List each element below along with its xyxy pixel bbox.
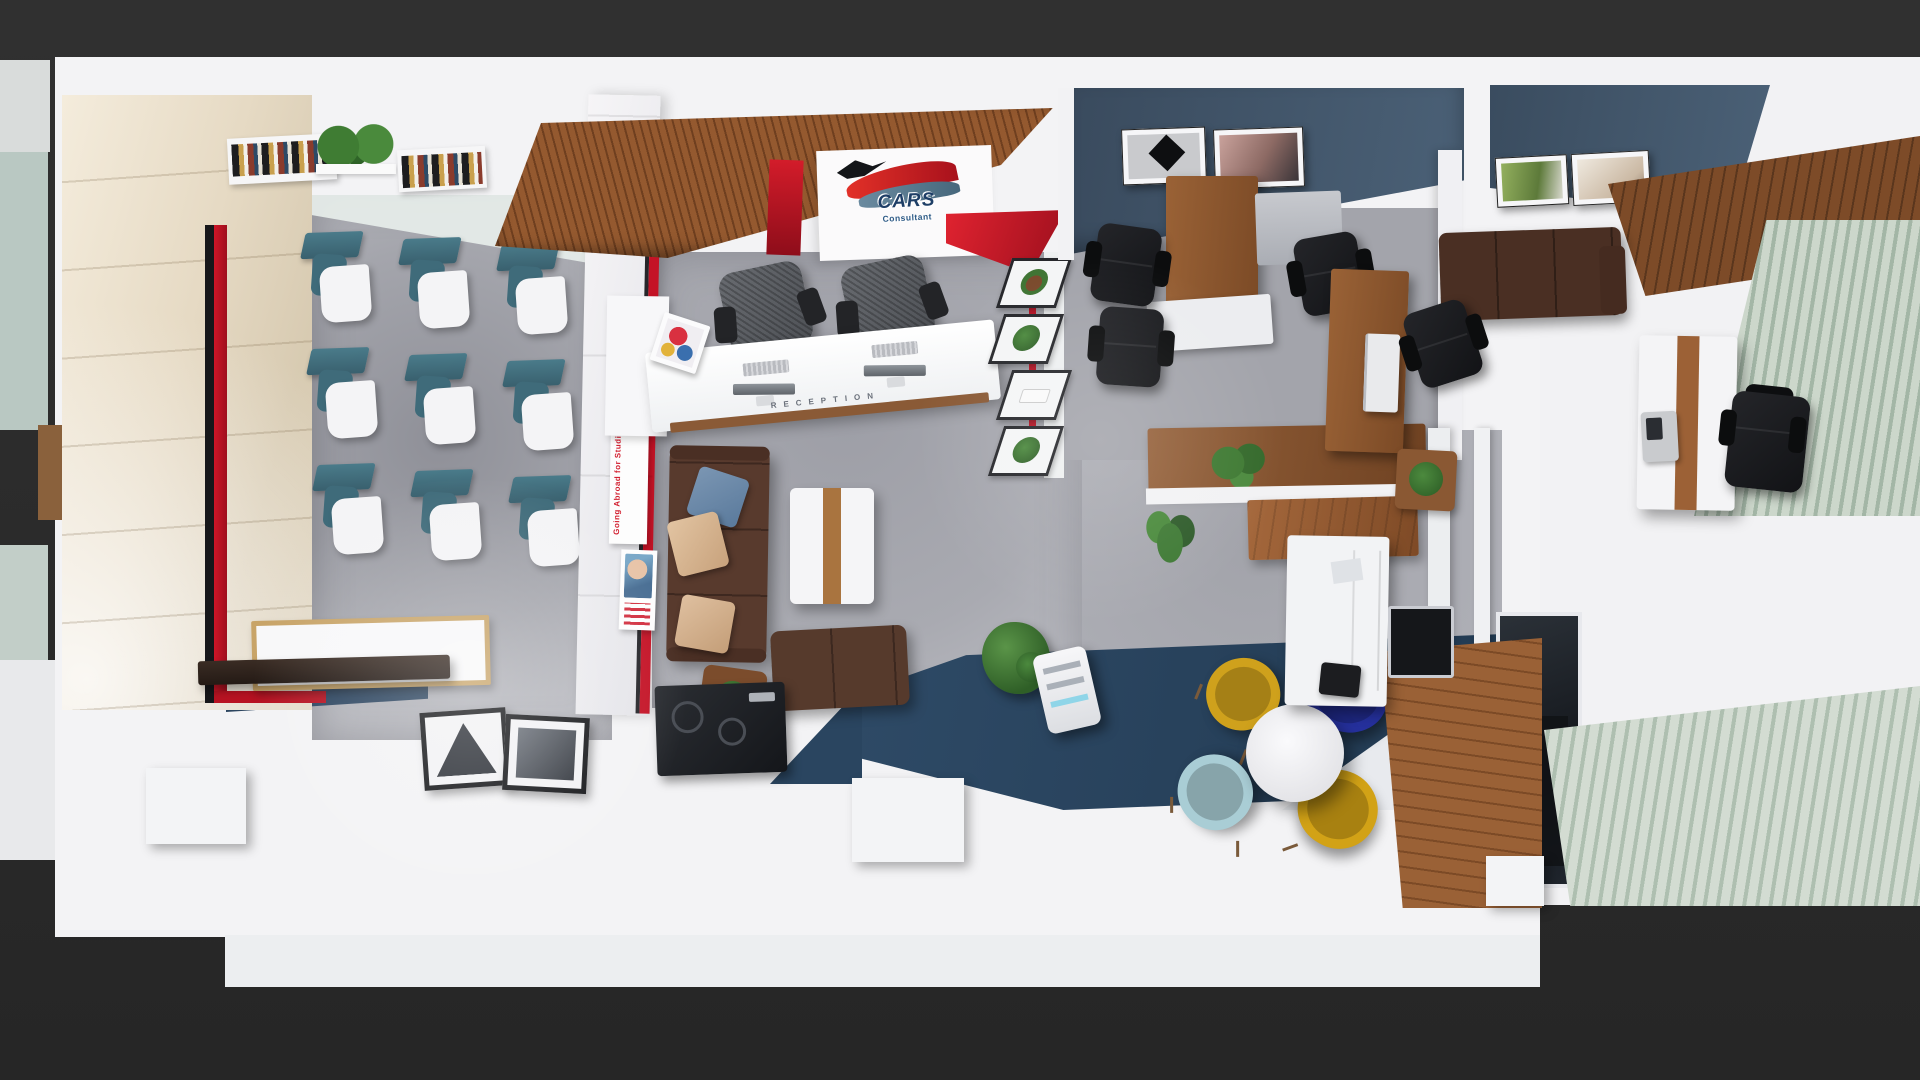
company-logo: CARS Consultant: [834, 155, 963, 231]
plant-ladder-shelf: [996, 258, 1066, 474]
plant-pot: [1009, 325, 1043, 351]
desk-seat: [429, 502, 483, 561]
desk-paper: [1331, 558, 1364, 584]
plant-pot: [1009, 437, 1043, 463]
chair-armrest: [1157, 330, 1175, 367]
desk-seat: [325, 380, 379, 439]
desk-seat: [423, 386, 477, 445]
wall-stub: [1486, 856, 1544, 906]
chair-armrest: [713, 306, 737, 343]
desk-seat: [521, 392, 575, 451]
loveseat: [770, 624, 910, 711]
student-desk: [302, 347, 379, 442]
red-accent-wall: [766, 159, 803, 255]
student-desk: [308, 463, 385, 558]
keyboard: [871, 341, 918, 358]
shelf-tray: [1018, 389, 1051, 403]
plant-table: [1394, 448, 1457, 511]
wall-art-frame: [1495, 154, 1570, 208]
desk-monitor: [1363, 333, 1401, 412]
reception-poster: [619, 549, 658, 630]
student-desk: [394, 237, 471, 332]
staff-office-left-wall: [1058, 88, 1074, 260]
executive-chair: [1714, 381, 1824, 511]
sofa-armrest: [670, 445, 770, 461]
kitchenette-counter: [654, 682, 787, 776]
coffee-table: [790, 488, 874, 604]
student-desk: [492, 243, 569, 338]
plant-pot: [1017, 269, 1051, 295]
desk-device: [1318, 662, 1361, 698]
student-desk: [498, 359, 575, 454]
cafe-table: [1246, 704, 1344, 802]
desk-wood-inlay: [1674, 336, 1699, 510]
ladder-shelf-cell: [996, 370, 1072, 420]
art-print: [1127, 133, 1200, 179]
wall-stub: [146, 768, 246, 844]
exec-sofa-return: [1599, 246, 1627, 315]
desk-seat: [331, 496, 385, 555]
ladder-shelf-cell: [988, 426, 1064, 476]
student-desk: [400, 353, 477, 448]
art-print: [1501, 160, 1563, 201]
task-chair: [1087, 297, 1175, 398]
desk-seat: [527, 508, 581, 567]
floor-plan-render: Going Abroad for Studies? CARS Consultan…: [0, 0, 1920, 1080]
desk-seat: [417, 270, 471, 329]
floor-picture-frame: [502, 714, 590, 794]
chair-body: [1089, 222, 1163, 308]
sink: [749, 692, 775, 702]
monitor: [733, 383, 795, 395]
student-desk: [504, 475, 581, 570]
desk-seat: [515, 276, 569, 335]
ladder-shelf-cell: [988, 314, 1064, 364]
monitor: [864, 365, 926, 377]
monitor-stand: [886, 376, 905, 388]
chair-armrest: [1087, 325, 1105, 362]
sofa-cushion-beige: [674, 594, 736, 655]
student-desk: [296, 231, 373, 326]
chair-body: [1095, 306, 1164, 388]
wall-stub: [852, 778, 964, 862]
student-desk: [406, 469, 483, 564]
ladder-shelf-cell: [996, 258, 1072, 308]
desk-phone: [1640, 411, 1679, 463]
keyboard: [742, 359, 789, 376]
desk-seat: [319, 264, 373, 323]
floor-picture-frame: [419, 707, 510, 791]
wall-monitor: [1388, 606, 1454, 678]
palm-plant: [1142, 500, 1198, 578]
